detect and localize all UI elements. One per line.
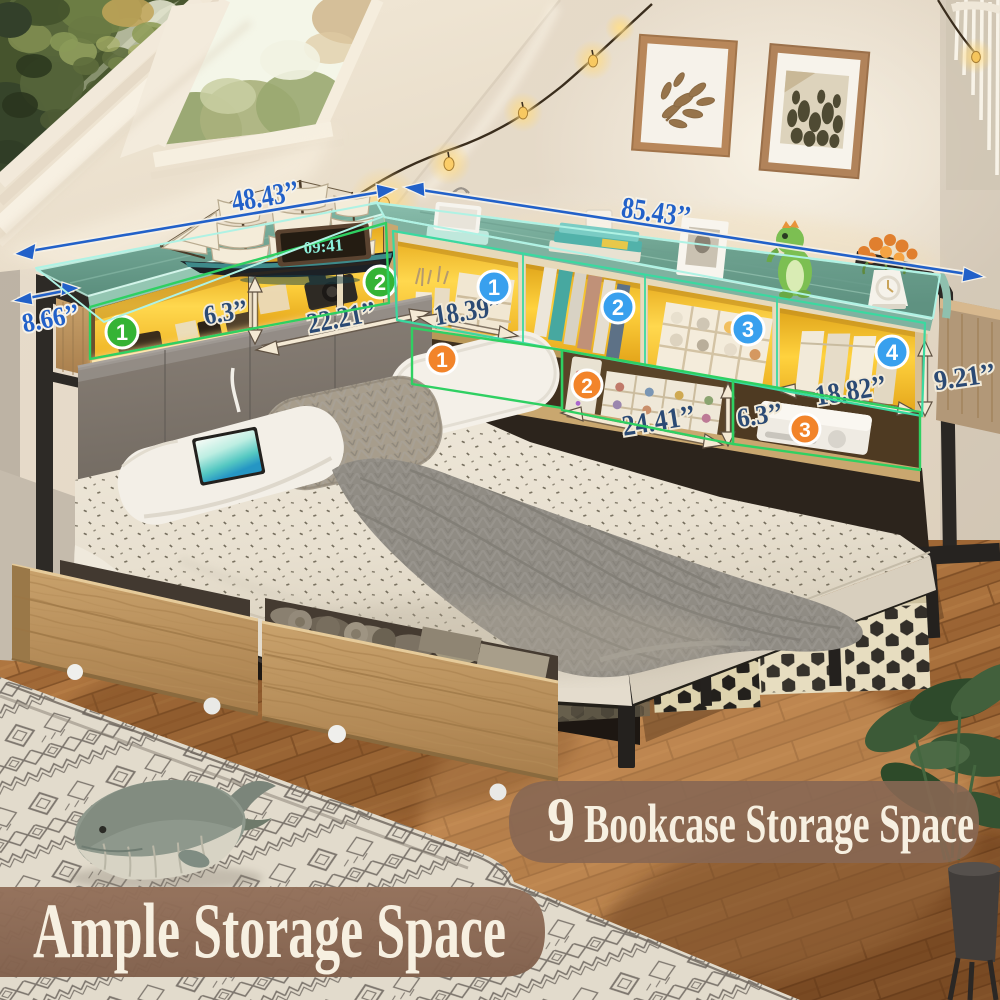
svg-text:1: 1 (436, 349, 448, 372)
svg-text:2: 2 (374, 270, 386, 295)
svg-text:3: 3 (799, 419, 811, 442)
svg-text:6.3’’: 6.3’’ (735, 397, 785, 433)
svg-text:1: 1 (488, 275, 500, 300)
svg-text:Bookcase Storage Space: Bookcase Storage Space (584, 793, 974, 854)
svg-text:2: 2 (581, 375, 593, 398)
svg-text:Ample Storage Space: Ample Storage Space (33, 887, 506, 974)
svg-text:4: 4 (886, 340, 899, 365)
svg-text:3: 3 (742, 317, 754, 342)
svg-text:1: 1 (116, 320, 128, 345)
svg-text:9: 9 (547, 785, 575, 855)
svg-text:2: 2 (612, 295, 624, 320)
